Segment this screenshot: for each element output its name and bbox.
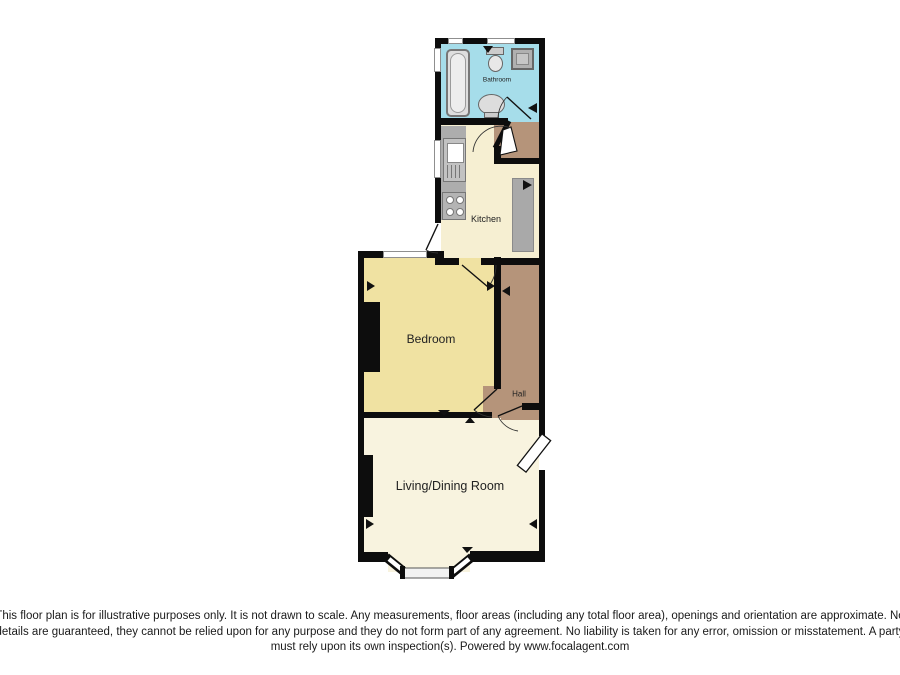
burner bbox=[456, 208, 464, 216]
window bbox=[448, 38, 463, 44]
chimney-breast bbox=[364, 455, 373, 517]
wall bbox=[435, 118, 508, 125]
chimney-breast bbox=[364, 302, 380, 372]
door-swing bbox=[426, 224, 438, 253]
shower-tray bbox=[516, 53, 529, 65]
wall bbox=[494, 158, 539, 164]
window bbox=[487, 38, 515, 44]
window bbox=[383, 251, 427, 258]
burner bbox=[446, 196, 454, 204]
wall bbox=[470, 551, 539, 562]
disclaimer-line: must rely upon its own inspection(s). Po… bbox=[0, 640, 900, 656]
wall bbox=[481, 258, 539, 265]
burner bbox=[446, 208, 454, 216]
wall bbox=[358, 552, 388, 562]
burner bbox=[456, 196, 464, 204]
shower-icon bbox=[511, 48, 534, 70]
wall bbox=[539, 38, 545, 438]
hall-label: Hall bbox=[512, 390, 526, 399]
storage-block bbox=[512, 178, 534, 252]
toilet-cistern bbox=[486, 47, 504, 55]
bedroom-label: Bedroom bbox=[407, 332, 456, 346]
toilet-icon bbox=[488, 55, 503, 72]
wall bbox=[358, 412, 492, 418]
kitchen-label: Kitchen bbox=[471, 214, 501, 224]
bathtub-inner bbox=[450, 53, 466, 113]
hob-icon bbox=[442, 192, 466, 220]
window bbox=[434, 48, 441, 72]
sink-basin bbox=[447, 143, 464, 163]
floor-plan-page: Bathroom Kitchen Bedroom Hall Living/Din… bbox=[0, 0, 900, 675]
sink-drainer bbox=[447, 165, 463, 178]
wall bbox=[494, 257, 501, 389]
disclaimer-line: This floor plan is for illustrative purp… bbox=[0, 609, 900, 625]
bathroom-label: Bathroom bbox=[483, 77, 511, 84]
living-room-label: Living/Dining Room bbox=[396, 479, 504, 493]
disclaimer-line: details are guaranteed, they cannot be r… bbox=[0, 625, 900, 641]
wall bbox=[444, 258, 459, 265]
wall bbox=[539, 468, 545, 562]
window bbox=[434, 140, 441, 178]
disclaimer-text: This floor plan is for illustrative purp… bbox=[0, 609, 900, 661]
kitchen-sink-icon bbox=[443, 138, 466, 182]
bay-floor bbox=[388, 552, 470, 572]
bathtub-icon bbox=[446, 49, 470, 117]
wall bbox=[522, 403, 539, 410]
